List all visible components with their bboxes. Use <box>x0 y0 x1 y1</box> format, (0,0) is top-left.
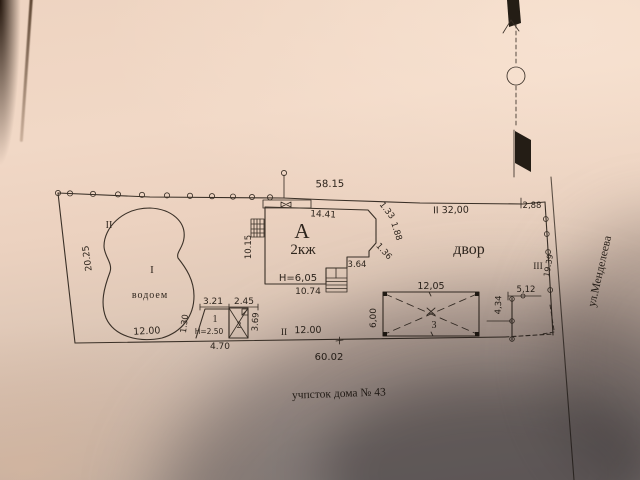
shed2-number: 2 <box>237 320 242 330</box>
dim-house-r1: 1.33 <box>377 200 397 221</box>
dim-shed3-top: 12,05 <box>417 281 444 292</box>
dim-shed2-side: 3.69 <box>251 312 262 331</box>
terrace-hatch-icon <box>281 202 291 207</box>
shed1-height: Н=2.50 <box>195 327 224 336</box>
shed3-number: 3 <box>432 320 437 331</box>
dim-house-top: 14.41 <box>310 209 336 220</box>
pond-label: водоем <box>132 290 168 301</box>
site-plan-drawing: 58.15 II 32,00 2,88 II 20.25 III 19.39 I… <box>0 0 640 480</box>
dim-house-r2: 1.88 <box>388 221 403 242</box>
north-arrow-icon <box>503 0 531 177</box>
photographed-site-plan: 58.15 II 32,00 2,88 II 20.25 III 19.39 I… <box>0 0 640 480</box>
dim-shed1-bottom: 4.70 <box>210 342 230 352</box>
yard-label: двор <box>453 241 485 258</box>
dim-house-bottom: 10.74 <box>295 287 321 297</box>
dim-bottom-segment: 12.00 <box>294 325 321 336</box>
dim-house-step: 3.64 <box>348 260 367 270</box>
dim-gate-height: 4,34 <box>494 295 505 314</box>
pond-marker: I <box>150 264 154 276</box>
house-porch <box>326 268 347 292</box>
label-segment-top-right: II 32,00 <box>433 205 469 217</box>
street-label: ул.Менделеева <box>586 235 614 308</box>
dim-shed1-top: 3.21 <box>203 297 223 307</box>
street-boundary-line <box>551 177 574 480</box>
dim-pond-width: 12.00 <box>133 325 161 337</box>
dim-left-boundary: 20.25 <box>81 245 94 272</box>
marker-left-boundary: II <box>106 220 113 231</box>
dim-gate-width: 5,12 <box>517 285 536 295</box>
dim-pond-offset: 1.30 <box>179 314 191 334</box>
dim-shed3-side: 6,00 <box>369 308 379 328</box>
house-height: Н=6,05 <box>279 273 317 284</box>
house-annex <box>251 219 264 237</box>
shed1-number: 1 <box>213 314 218 325</box>
dim-house-left: 10.15 <box>244 235 254 259</box>
dim-bottom-total: 60.02 <box>315 352 344 363</box>
dim-top-total: 58.15 <box>316 179 345 190</box>
house-floors: 2кж <box>290 242 316 258</box>
dim-house-r3: 1.36 <box>373 241 393 262</box>
plot-caption: учпсток дома № 43 <box>292 386 386 401</box>
marker-bottom-boundary: II <box>281 328 287 338</box>
fence-posts <box>67 191 272 200</box>
marker-right-boundary: III <box>533 262 543 272</box>
house-letter: А <box>294 219 310 243</box>
dim-right-boundary: 19.39 <box>542 254 555 278</box>
dim-corner-right: 2,88 <box>523 201 542 211</box>
dim-shed2-top: 2.45 <box>234 297 254 307</box>
